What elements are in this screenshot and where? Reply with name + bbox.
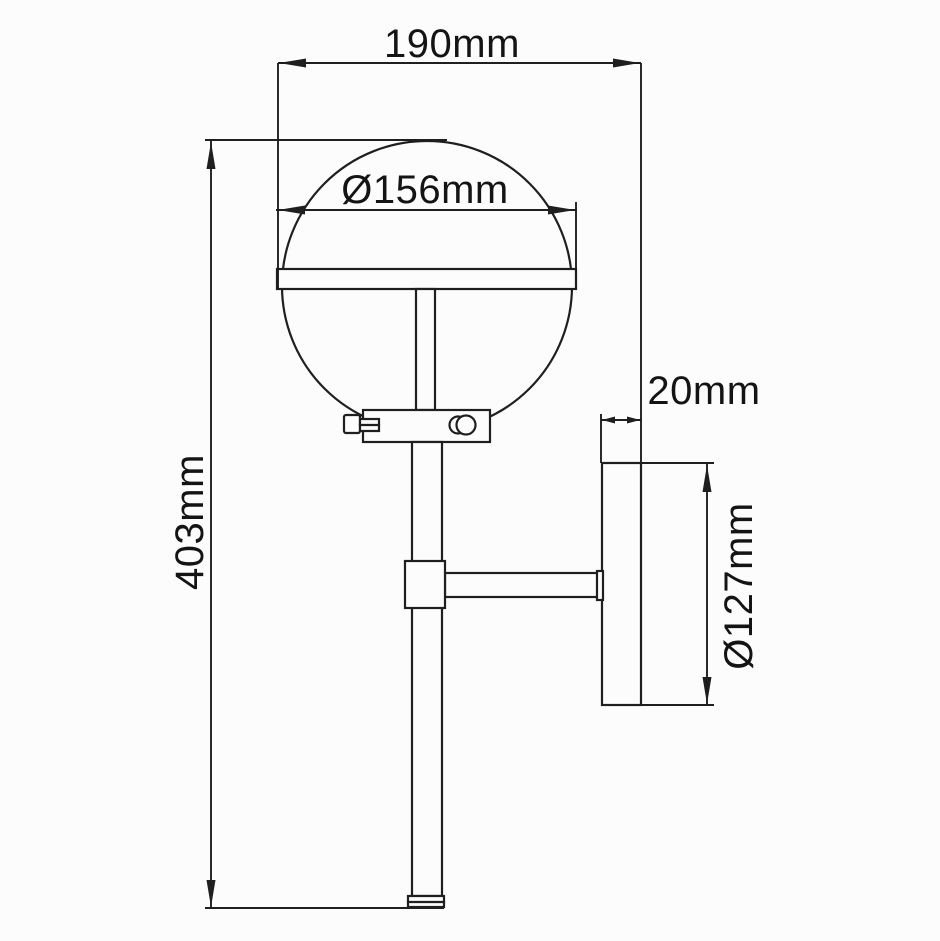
arm-flange (597, 571, 603, 600)
dim-label-overall-height: 403mm (168, 454, 212, 590)
wall-backplate (602, 463, 641, 705)
arm-coupling (405, 561, 445, 608)
dim-label-projection-width: 190mm (384, 22, 520, 66)
globe-stem (416, 289, 435, 410)
support-pole (412, 442, 442, 896)
thumb-screw-head (344, 415, 360, 433)
drawing-canvas: 190mm Ø156mm 403mm 20mm Ø127mm (0, 0, 940, 941)
arrowhead-right-icon (627, 417, 640, 424)
arrowhead-left-icon (602, 417, 615, 424)
arrowhead-right-icon (613, 59, 640, 68)
dim-label-shade-diameter: Ø156mm (341, 168, 509, 212)
arrowhead-down-icon (207, 880, 216, 907)
dim-label-backplate-depth: 20mm (647, 369, 760, 413)
globe-collar-band (277, 269, 576, 289)
arrowhead-up-icon (703, 465, 712, 492)
arrowhead-left-icon (278, 206, 305, 215)
wall-light-dimension-drawing: 190mm Ø156mm 403mm 20mm Ø127mm (0, 0, 940, 941)
fixture (277, 141, 641, 907)
arrowhead-right-icon (548, 206, 575, 215)
arrowhead-up-icon (207, 142, 216, 169)
dim-label-backplate-diameter: Ø127mm (717, 502, 761, 670)
bracket-knob-front (457, 416, 476, 435)
wall-arm (445, 573, 598, 597)
arrowhead-left-icon (279, 59, 306, 68)
dimension-annotations: 190mm Ø156mm 403mm 20mm Ø127mm (168, 22, 761, 908)
arrowhead-down-icon (703, 677, 712, 704)
